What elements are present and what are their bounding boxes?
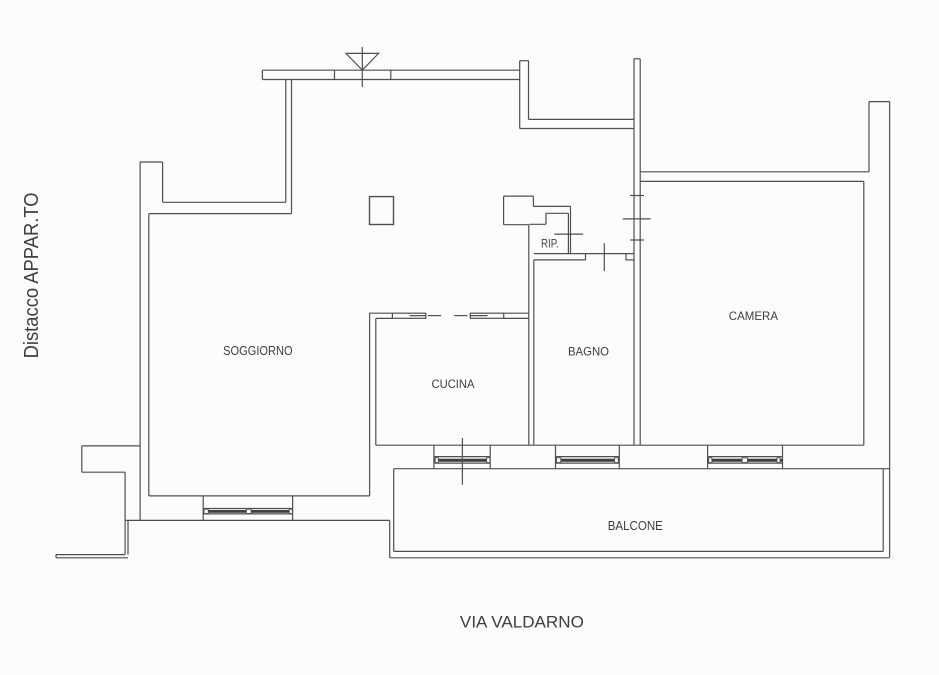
svg-text:VIA VALDARNO: VIA VALDARNO <box>460 612 584 631</box>
svg-text:BAGNO: BAGNO <box>568 345 609 359</box>
svg-text:CAMERA: CAMERA <box>729 309 779 323</box>
svg-text:RIP.: RIP. <box>541 236 559 250</box>
svg-text:BALCONE: BALCONE <box>608 519 663 533</box>
svg-text:Distacco APPAR.TO: Distacco APPAR.TO <box>21 192 43 358</box>
svg-text:CUCINA: CUCINA <box>432 377 476 391</box>
svg-text:SOGGIORNO: SOGGIORNO <box>223 344 293 358</box>
